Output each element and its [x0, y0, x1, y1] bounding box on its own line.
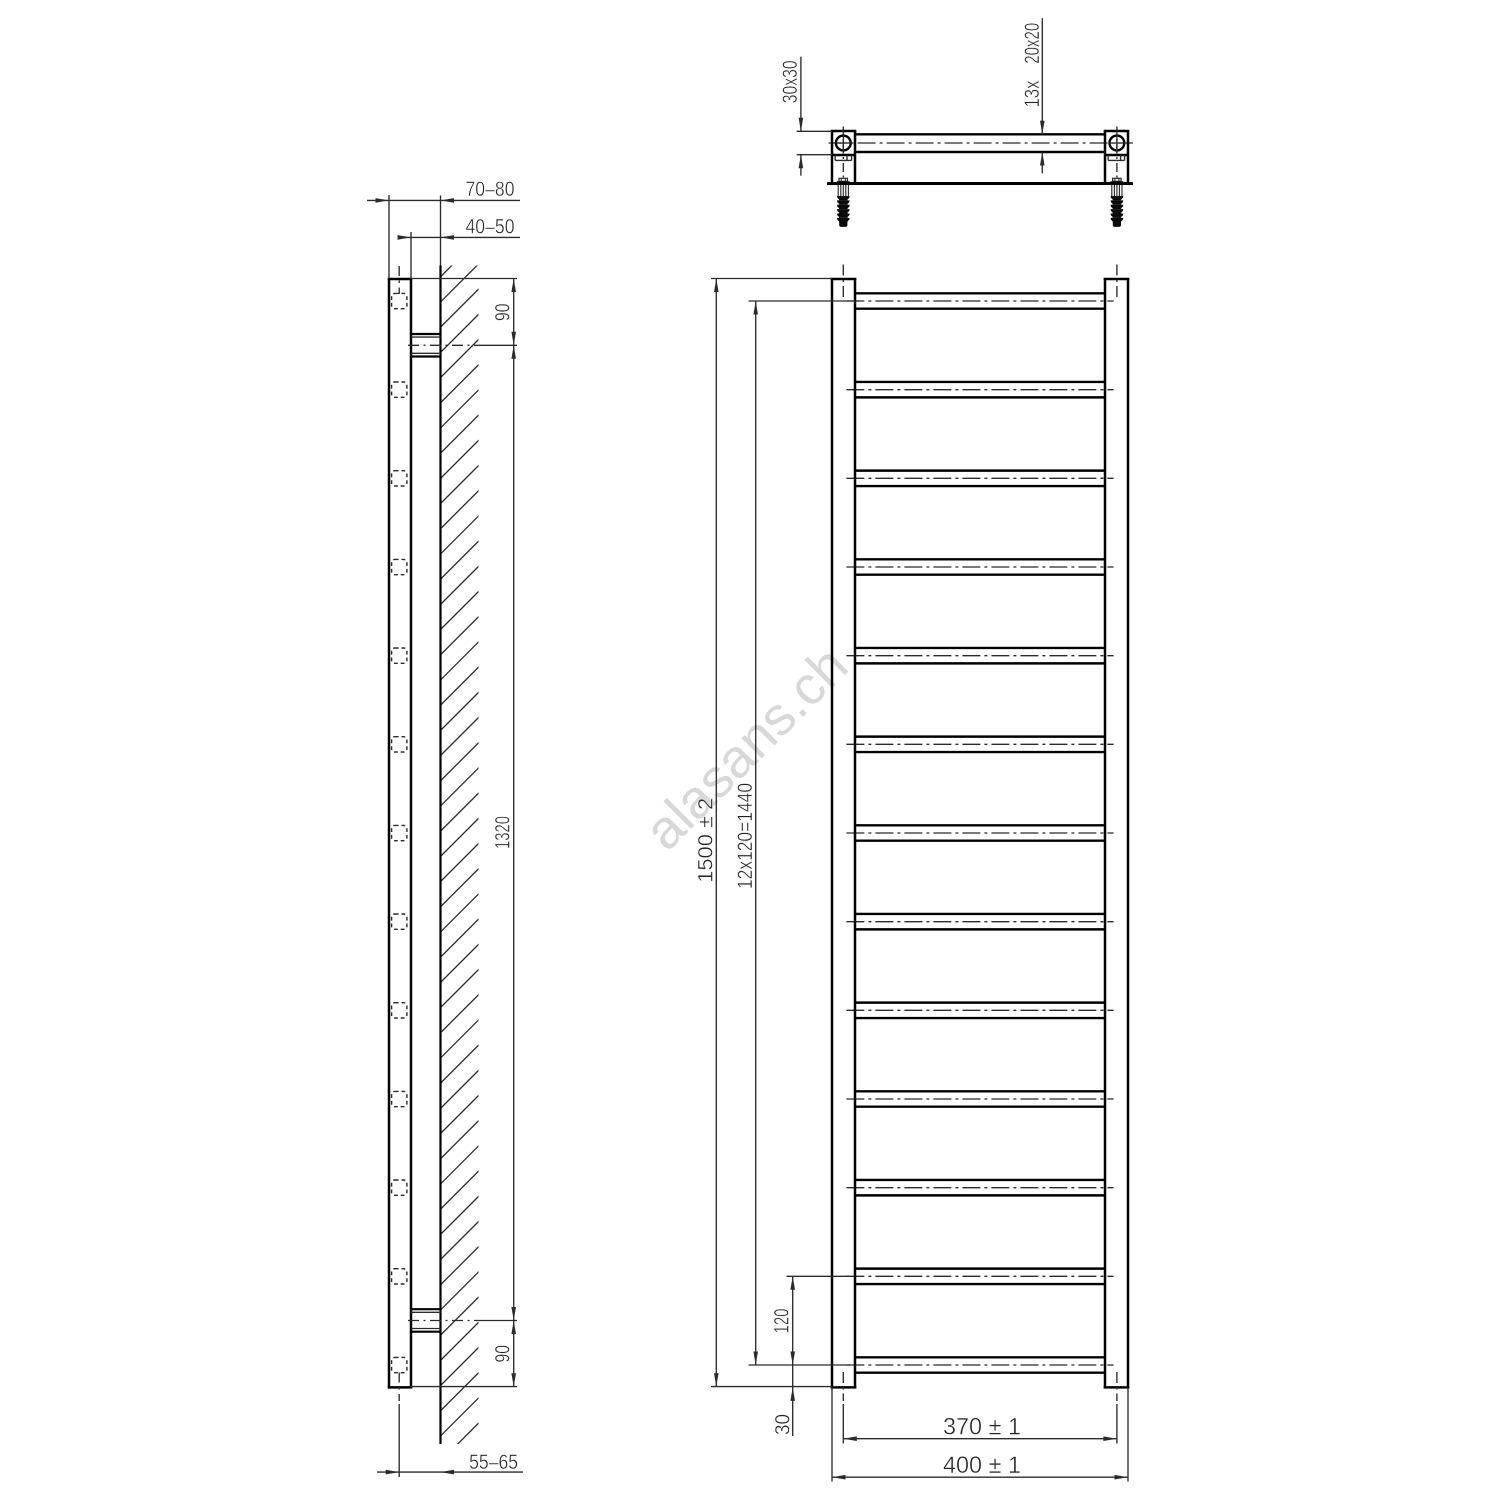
svg-text:120: 120	[770, 1308, 794, 1333]
svg-text:400 ± 1: 400 ± 1	[943, 1452, 1021, 1479]
svg-text:55–65: 55–65	[469, 1450, 518, 1474]
svg-text:1320: 1320	[491, 816, 515, 849]
svg-text:12x120=1440: 12x120=1440	[733, 783, 757, 889]
svg-text:30x30: 30x30	[778, 60, 802, 103]
svg-text:1500 ± 2: 1500 ± 2	[694, 798, 718, 883]
svg-text:13x: 13x	[1020, 80, 1044, 107]
svg-text:90: 90	[491, 304, 515, 322]
svg-text:40–50: 40–50	[466, 215, 515, 239]
svg-text:30: 30	[771, 1414, 795, 1435]
svg-text:370 ± 1: 370 ± 1	[943, 1414, 1021, 1441]
svg-text:20x20: 20x20	[1020, 23, 1044, 64]
svg-text:70–80: 70–80	[466, 177, 515, 201]
svg-text:90: 90	[491, 1345, 515, 1363]
